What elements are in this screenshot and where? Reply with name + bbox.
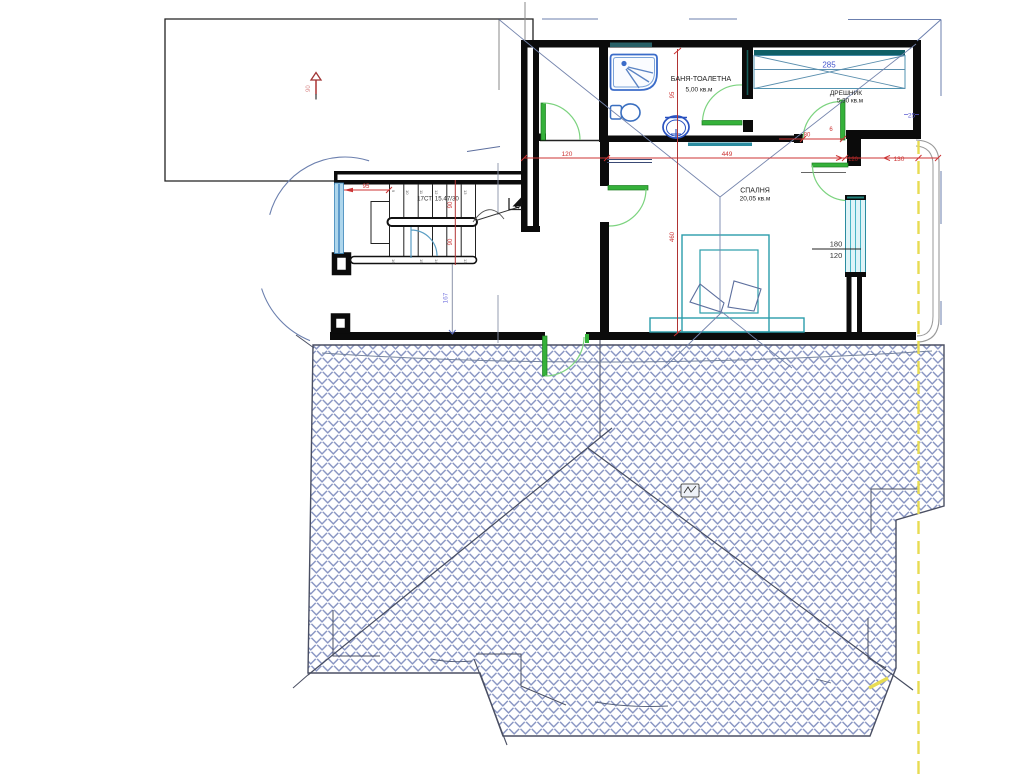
svg-text:95: 95 <box>363 184 370 190</box>
svg-text:ДРЕШНИК: ДРЕШНИК <box>830 90 862 97</box>
svg-text:90: 90 <box>306 85 312 92</box>
svg-text:20,05 кв.м: 20,05 кв.м <box>740 196 771 203</box>
svg-text:120: 120 <box>830 251 843 260</box>
svg-text:СПАЛНЯ: СПАЛНЯ <box>740 188 770 195</box>
svg-text:13: 13 <box>463 190 468 195</box>
svg-text:5,30 кв.м: 5,30 кв.м <box>837 98 863 105</box>
svg-text:12: 12 <box>434 190 439 195</box>
svg-text:80: 80 <box>804 133 811 139</box>
svg-text:6: 6 <box>829 127 833 133</box>
svg-text:15: 15 <box>419 259 424 264</box>
svg-text:95: 95 <box>670 91 676 98</box>
svg-text:13: 13 <box>463 259 468 264</box>
svg-text:449: 449 <box>722 151 733 158</box>
svg-text:120: 120 <box>848 157 859 163</box>
svg-text:16: 16 <box>391 259 396 264</box>
svg-text:180: 180 <box>830 240 843 249</box>
svg-text:14: 14 <box>434 259 439 264</box>
svg-text:460: 460 <box>670 231 676 242</box>
svg-text:167: 167 <box>443 292 450 303</box>
svg-text:11: 11 <box>419 190 424 195</box>
svg-text:90: 90 <box>448 238 454 245</box>
svg-text:25: 25 <box>908 113 916 120</box>
svg-text:285: 285 <box>822 61 836 70</box>
svg-text:90: 90 <box>448 201 454 208</box>
svg-text:17СТ. 15.47/30: 17СТ. 15.47/30 <box>417 196 459 203</box>
svg-text:10: 10 <box>405 190 410 195</box>
svg-text:9: 9 <box>391 190 396 193</box>
svg-text:120: 120 <box>562 151 573 158</box>
svg-text:130: 130 <box>894 156 905 163</box>
svg-text:БАНЯ-ТОАЛЕТНА: БАНЯ-ТОАЛЕТНА <box>671 74 732 83</box>
svg-text:5,00 кв.м: 5,00 кв.м <box>685 87 713 94</box>
